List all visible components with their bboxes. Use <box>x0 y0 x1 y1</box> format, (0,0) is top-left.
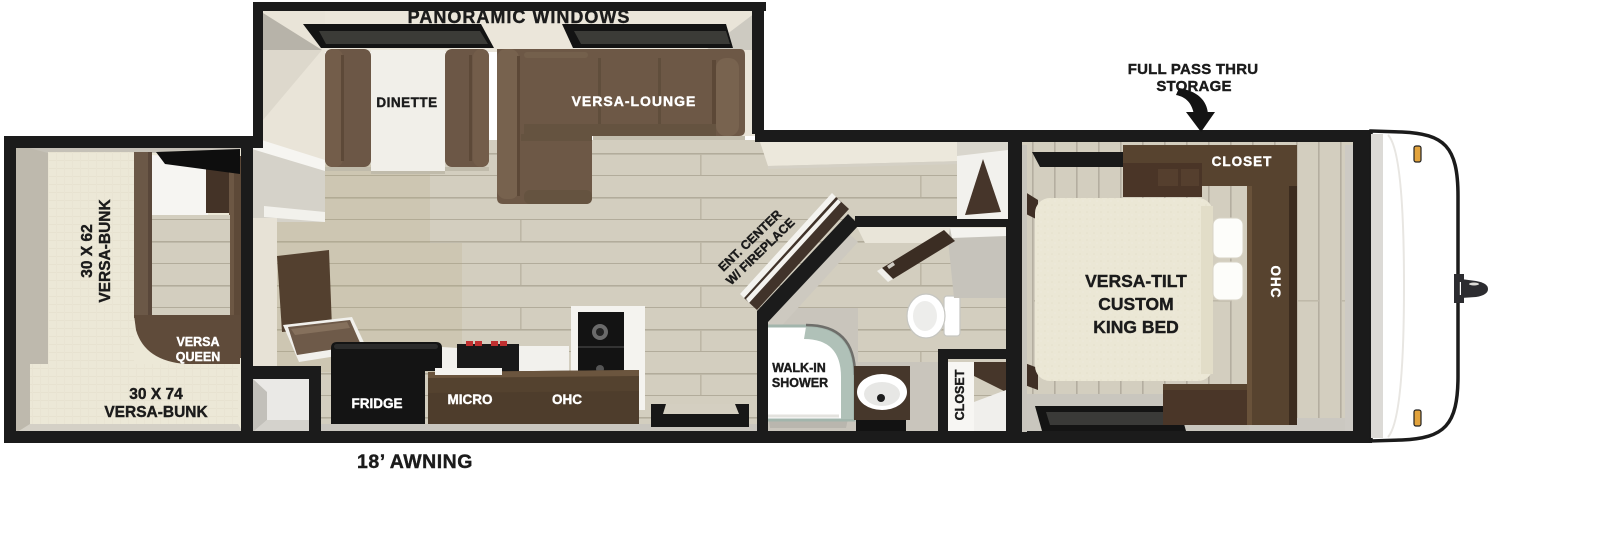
svg-text:FULL PASS THRU: FULL PASS THRU <box>1128 61 1259 78</box>
svg-text:VERSA-BUNK: VERSA-BUNK <box>97 199 114 303</box>
svg-text:VERSA-LOUNGE: VERSA-LOUNGE <box>572 93 697 109</box>
svg-text:VERSA-BUNK: VERSA-BUNK <box>104 404 208 421</box>
svg-text:30 X 74: 30 X 74 <box>129 386 183 403</box>
svg-text:OHC: OHC <box>1268 266 1283 299</box>
svg-text:VERSA-TILT: VERSA-TILT <box>1085 271 1187 291</box>
svg-text:OHC: OHC <box>552 392 582 407</box>
svg-text:CUSTOM: CUSTOM <box>1098 294 1174 314</box>
svg-text:QUEEN: QUEEN <box>176 350 220 364</box>
svg-text:30 X 62: 30 X 62 <box>79 224 96 277</box>
svg-text:VERSA: VERSA <box>176 335 219 349</box>
svg-text:WALK-IN: WALK-IN <box>772 361 825 375</box>
svg-text:MICRO: MICRO <box>448 392 493 407</box>
svg-text:DINETTE: DINETTE <box>376 95 437 110</box>
svg-text:KING BED: KING BED <box>1093 317 1179 337</box>
svg-text:STORAGE: STORAGE <box>1156 78 1231 95</box>
svg-text:SHOWER: SHOWER <box>772 376 828 390</box>
svg-text:FRIDGE: FRIDGE <box>351 396 402 411</box>
svg-text:CLOSET: CLOSET <box>953 369 967 420</box>
svg-text:CLOSET: CLOSET <box>1212 154 1273 169</box>
svg-text:18’ AWNING: 18’ AWNING <box>357 451 473 473</box>
